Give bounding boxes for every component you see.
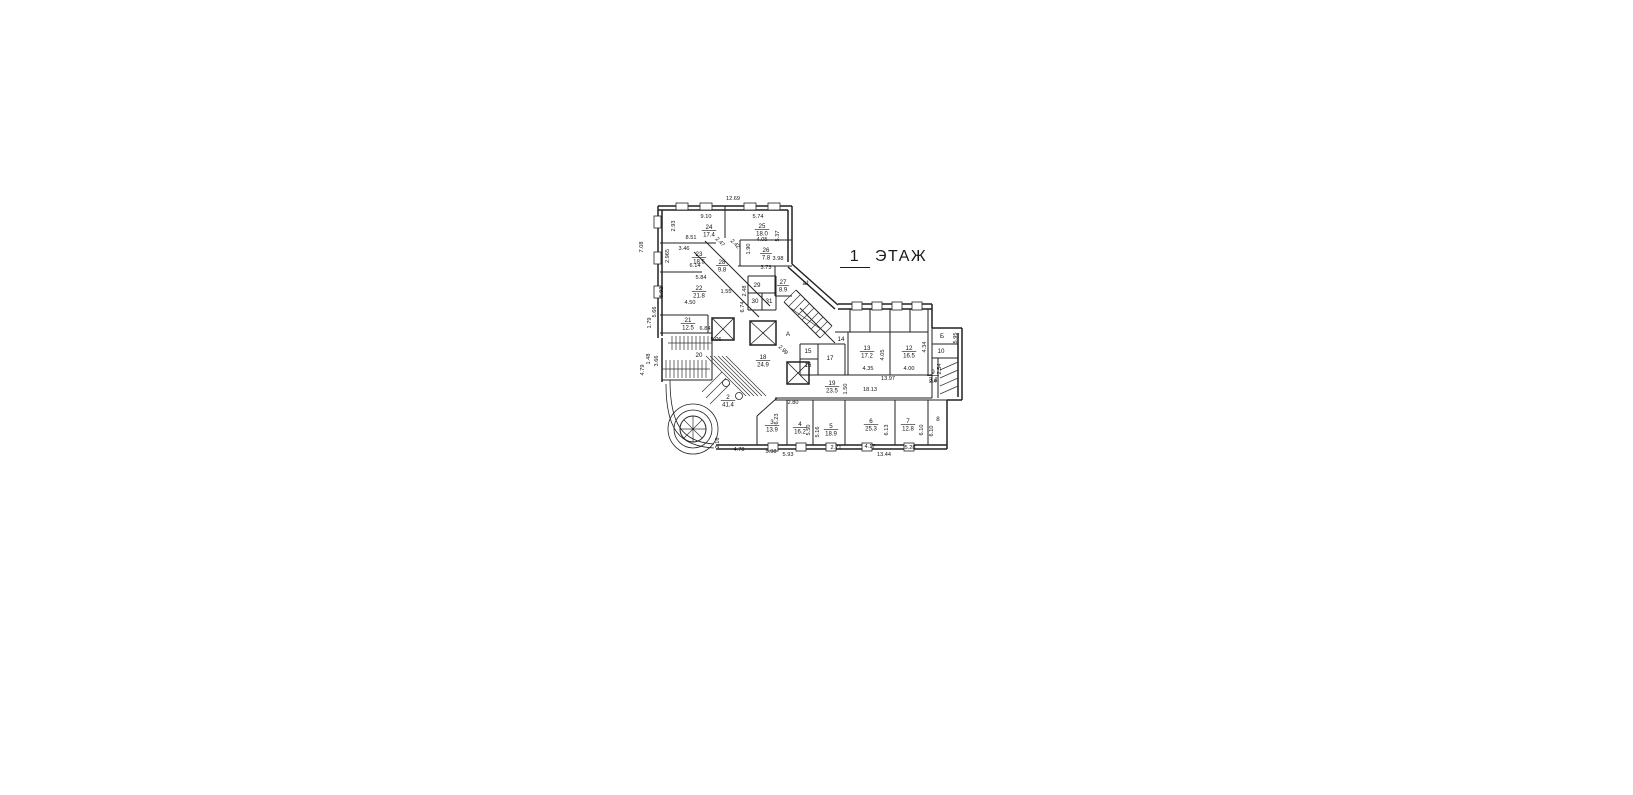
dim-label: 18.13 — [863, 387, 877, 393]
dim-label: 2.47 — [714, 236, 726, 248]
elevator-shafts — [712, 318, 809, 384]
dim-label: 6.13 — [884, 425, 890, 436]
room-area: 24.9 — [757, 362, 769, 368]
room-area: 16.5 — [903, 353, 915, 359]
room-mark: 31 — [766, 298, 773, 305]
dim-label: 6.10 — [919, 425, 925, 436]
dim-label: 4.79 — [640, 365, 646, 376]
dim-label: 5.92 — [659, 287, 665, 298]
room-area: 21.8 — [693, 293, 705, 299]
floor-number: 1 — [840, 248, 870, 268]
room-mark: а1 — [803, 280, 810, 287]
dim-label: 2.48 — [742, 286, 748, 297]
room-mark: 14 — [838, 336, 845, 343]
dim-label: 5.95 — [953, 333, 959, 344]
dim-label: 5.16 — [815, 427, 821, 438]
room-number: 27 — [780, 279, 787, 286]
room-number: 18 — [760, 354, 767, 361]
dim-label: 5.84 — [696, 275, 707, 281]
dim-label: 5.66 — [652, 307, 658, 318]
dim-label: 5.74 — [753, 214, 764, 220]
room-number: 28 — [719, 259, 726, 266]
room-number: 24 — [706, 224, 713, 231]
room-area: 17.4 — [703, 232, 715, 238]
room-mark: 8 — [936, 416, 940, 423]
dim-label: 2.4 — [929, 379, 937, 385]
dim-label: 5.50 — [806, 425, 812, 436]
dim-label: 2.71 — [831, 445, 842, 451]
room-number: 26 — [763, 247, 770, 254]
dim-label: 4.05 — [757, 237, 768, 243]
room-mark: 15 — [805, 348, 812, 355]
dim-label: 13.97 — [881, 376, 895, 382]
room-area: 16.2 — [794, 429, 806, 435]
room-number: 9 — [931, 369, 935, 376]
room-mark: А — [786, 331, 791, 338]
dim-label: 2.99 — [777, 344, 789, 356]
dim-label: 6.84 — [700, 326, 711, 332]
dim-label: 4.00 — [904, 366, 915, 372]
dim-label: 4.05 — [880, 350, 886, 361]
dim-label: 12.69 — [726, 196, 740, 202]
rotunda — [666, 372, 743, 454]
room-area: 12.5 — [682, 325, 694, 331]
room-area: 9.8 — [718, 267, 727, 273]
dim-label: 2.93 — [671, 221, 677, 232]
room-number: 4 — [798, 421, 802, 428]
dim-label: 2.80 — [788, 400, 799, 406]
dim-label: 4.35 — [863, 366, 874, 372]
room-number: 7 — [906, 418, 910, 425]
room-area: 18.9 — [825, 431, 837, 437]
room-mark: 17 — [827, 355, 834, 362]
floor-plan: 2417.42518.02318.5267.8289.8278.92221.82… — [0, 0, 1633, 795]
dim-label: 2.16 — [715, 438, 721, 449]
elevator-x-icon — [750, 321, 776, 345]
room-number: 12 — [906, 345, 913, 352]
dim-label: 6.10 — [929, 426, 935, 437]
room-area: 17.2 — [861, 353, 873, 359]
dim-label: 4.78 — [734, 447, 745, 453]
dim-label: 6.14 — [690, 263, 701, 269]
room-number: 19 — [829, 380, 836, 387]
dim-label: 9.10 — [701, 214, 712, 220]
room-number: 13 — [864, 345, 871, 352]
room-area: 13.9 — [766, 427, 778, 433]
dim-label: 2.965 — [665, 249, 671, 263]
dim-label: 5.93 — [783, 452, 794, 458]
dim-label: 2.54 — [937, 364, 943, 375]
dim-label: 7.08 — [639, 242, 645, 253]
dim-label: 5.98 — [766, 449, 777, 455]
room-mark: 10 — [938, 348, 945, 355]
dim-label: 5.06 — [711, 337, 722, 343]
room-number: 5 — [829, 423, 833, 430]
dim-label: 5.28 — [905, 445, 916, 451]
room-mark: 30 — [752, 298, 759, 305]
room-number: 23 — [696, 251, 703, 258]
dim-label: 2.42 — [729, 238, 741, 250]
dim-label: 1.55 — [721, 289, 732, 295]
room-area: 12.8 — [902, 426, 914, 432]
room-number: 22 — [696, 285, 703, 292]
stair-20-treads — [662, 336, 712, 378]
room-area: 7.8 — [762, 255, 771, 261]
dim-label: 6.74 — [740, 302, 746, 313]
dim-label: 3.66 — [654, 356, 660, 367]
dim-label: 5.37 — [775, 231, 781, 242]
dim-label: 4.50 — [685, 300, 696, 306]
room-mark: 20 — [696, 352, 703, 359]
floor-plan-svg: 2417.42518.02318.5267.8289.8278.92221.82… — [0, 0, 1633, 795]
dim-label: 8.51 — [686, 235, 697, 241]
dim-label: 1.50 — [843, 384, 849, 395]
room-number: 21 — [685, 317, 692, 324]
room-number: 25 — [759, 223, 766, 230]
dim-label: 4.34 — [922, 342, 928, 353]
room-mark: 29 — [754, 282, 761, 289]
dim-label: 3.46 — [679, 246, 690, 252]
dim-label: 1.48 — [646, 354, 652, 365]
floor-title: 1ЭТАЖ — [840, 248, 927, 268]
room-area: 25.3 — [865, 426, 877, 432]
dim-label: 3.98 — [773, 256, 784, 262]
dim-label: 3.73 — [761, 265, 772, 271]
dim-label: 4.17 — [865, 444, 876, 450]
room-mark: Б — [940, 333, 944, 340]
room-number: 2 — [726, 394, 730, 401]
room-mark: 16 — [805, 362, 812, 369]
dim-label: 13.44 — [877, 452, 891, 458]
dim-label: 1.79 — [647, 318, 653, 329]
room-number: 6 — [869, 418, 873, 425]
room-area: 8.9 — [779, 287, 788, 293]
stair-a-hatch — [784, 290, 832, 338]
room-area: 23.5 — [826, 388, 838, 394]
floor-word: ЭТАЖ — [875, 248, 927, 265]
dim-label: 6.23 — [774, 414, 780, 425]
dim-label: 1.90 — [746, 244, 752, 255]
room-area: 41.4 — [722, 402, 734, 408]
